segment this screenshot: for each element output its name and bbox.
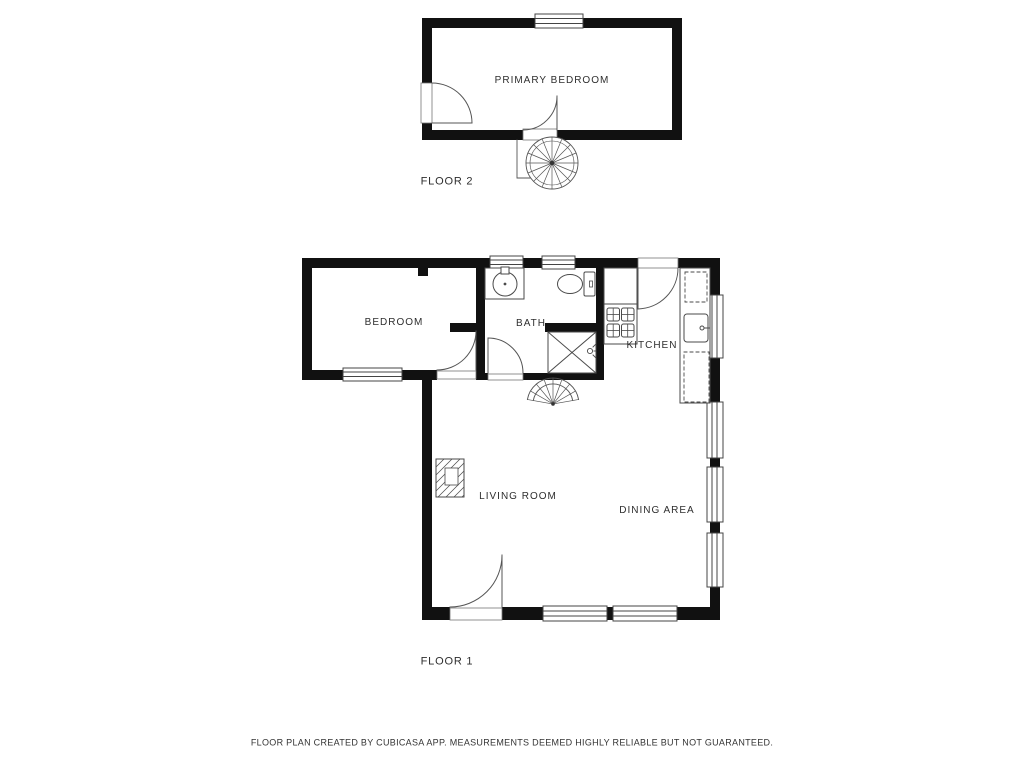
floor-plan-drawing [0, 0, 1024, 768]
door-swing-icon [523, 96, 557, 140]
spiral-staircase-icon [527, 378, 578, 406]
disclaimer-text: FLOOR PLAN CREATED BY CUBICASA APP. MEAS… [251, 739, 773, 748]
fireplace-icon [436, 459, 464, 497]
door-swing-icon [421, 83, 472, 123]
window [535, 14, 583, 28]
kitchen-counter [680, 268, 710, 403]
stove-icon [604, 268, 637, 344]
toilet-icon [558, 272, 596, 296]
shower-icon [548, 332, 596, 373]
room-label-bedroom: BEDROOM [365, 318, 424, 328]
room-label-kitchen: KITCHEN [627, 341, 678, 351]
room-label-dining-area: DINING AREA [619, 506, 694, 516]
floor1-plan [302, 256, 723, 621]
kitchen-sink-icon [684, 314, 710, 342]
floor1-walls [302, 258, 720, 620]
floor-plan-page: PRIMARY BEDROOM FLOOR 2 BEDROOM BATH KIT… [0, 0, 1024, 768]
door-swing-icon [450, 555, 502, 620]
room-label-primary-bedroom: PRIMARY BEDROOM [495, 76, 610, 86]
floor2-plan [421, 14, 682, 189]
door-swing-icon [638, 258, 678, 309]
floor1-label: FLOOR 1 [421, 657, 474, 668]
room-label-living-room: LIVING ROOM [479, 492, 557, 502]
spiral-staircase-icon [517, 137, 578, 189]
door-swing-icon [488, 338, 523, 380]
floor2-label: FLOOR 2 [421, 177, 474, 188]
room-label-bath: BATH [516, 319, 546, 329]
bathroom-sink-icon [485, 267, 524, 299]
door-swing-icon [437, 331, 476, 379]
